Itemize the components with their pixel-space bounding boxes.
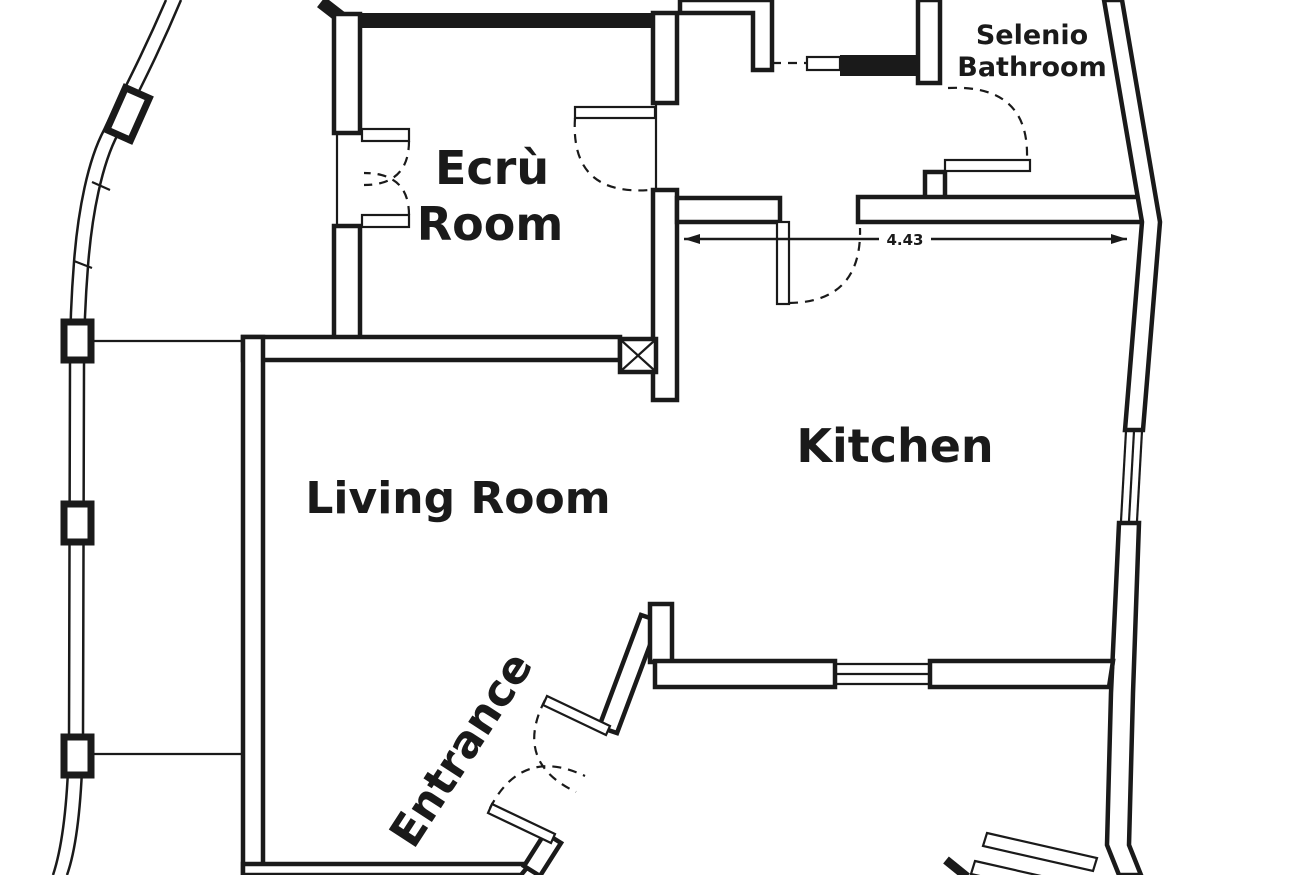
- stair-step: [971, 861, 1085, 875]
- door-leaf: [945, 160, 1030, 171]
- room-label-ecru-line2: Room: [417, 197, 564, 251]
- dimension-arrow-left: [684, 234, 700, 244]
- pocket-door-panel: [840, 55, 920, 76]
- door-leaf: [362, 215, 409, 227]
- room-label-bathroom-line1: Selenio: [976, 20, 1088, 51]
- door-bathroom: [945, 88, 1030, 171]
- wall-kitchen-topleft: [677, 198, 780, 222]
- room-label-kitchen: Kitchen: [796, 419, 993, 473]
- wall-ecru-living-divider: [243, 337, 620, 360]
- balcony-post: [64, 504, 91, 542]
- balcony-post: [64, 322, 91, 360]
- pocket-door-recess: [807, 57, 840, 70]
- room-label-ecru-line1: Ecrù: [435, 141, 549, 195]
- wall-kitchen-bottom-right: [930, 661, 1113, 687]
- wall-ecru-left-upper: [334, 14, 360, 133]
- door-leaf: [362, 129, 409, 141]
- wall-right-lower: [1107, 523, 1141, 875]
- pocket-door: [772, 55, 920, 76]
- wall-corridor-top: [680, 0, 772, 70]
- wall-living-left: [243, 337, 263, 875]
- door-swing-arc: [364, 173, 409, 215]
- room-label-bathroom-line2: Bathroom: [957, 52, 1106, 83]
- room-labels: Ecrù Room Selenio Bathroom Kitchen Livin…: [305, 20, 1106, 856]
- window-kitchen-bottom: [836, 664, 929, 684]
- wall-kitchen-bottom-left: [655, 661, 835, 687]
- wall-kitchen-stub: [650, 604, 672, 662]
- door-ecru-corridor: [575, 107, 655, 190]
- door-leaf: [777, 222, 789, 304]
- door-ecru-double: [362, 129, 409, 227]
- door-leaf: [543, 696, 610, 735]
- door-kitchen: [777, 222, 860, 304]
- wall-ecru-top: [336, 13, 657, 28]
- balcony-post: [64, 737, 91, 775]
- door-swing-arc: [948, 88, 1027, 158]
- dimension-line: 4.43: [684, 228, 1127, 250]
- stair-step: [983, 833, 1097, 871]
- stairs-detail: [946, 833, 1097, 875]
- wall-ecru-left-lower: [334, 226, 360, 342]
- wall-bathroom-step: [925, 172, 945, 198]
- door-swing-arc: [364, 141, 409, 185]
- door-leaf: [488, 804, 555, 843]
- pillar-column: [620, 339, 656, 372]
- room-label-living: Living Room: [305, 473, 610, 524]
- door-leaf: [575, 107, 655, 118]
- balcony-railing: [53, 0, 243, 875]
- floor-plan-svg: 4.43 Ecrù Room Selenio Bathroom Kitchen …: [0, 0, 1310, 875]
- floor-plan: 4.43 Ecrù Room Selenio Bathroom Kitchen …: [0, 0, 1310, 875]
- wall-bathroom-left: [918, 0, 940, 83]
- dimension-arrow-right: [1111, 234, 1127, 244]
- wall-ecru-right-upper: [653, 13, 677, 103]
- window-right-wall: [1121, 431, 1142, 521]
- door-swing-arc: [575, 118, 650, 190]
- balcony-post: [107, 88, 149, 141]
- door-swing-arc: [490, 766, 585, 808]
- dimension-label: 4.43: [886, 231, 923, 249]
- wall-living-bottom: [243, 864, 530, 875]
- wall-bathroom-bottom: [858, 197, 1152, 222]
- stair-edge: [946, 860, 967, 875]
